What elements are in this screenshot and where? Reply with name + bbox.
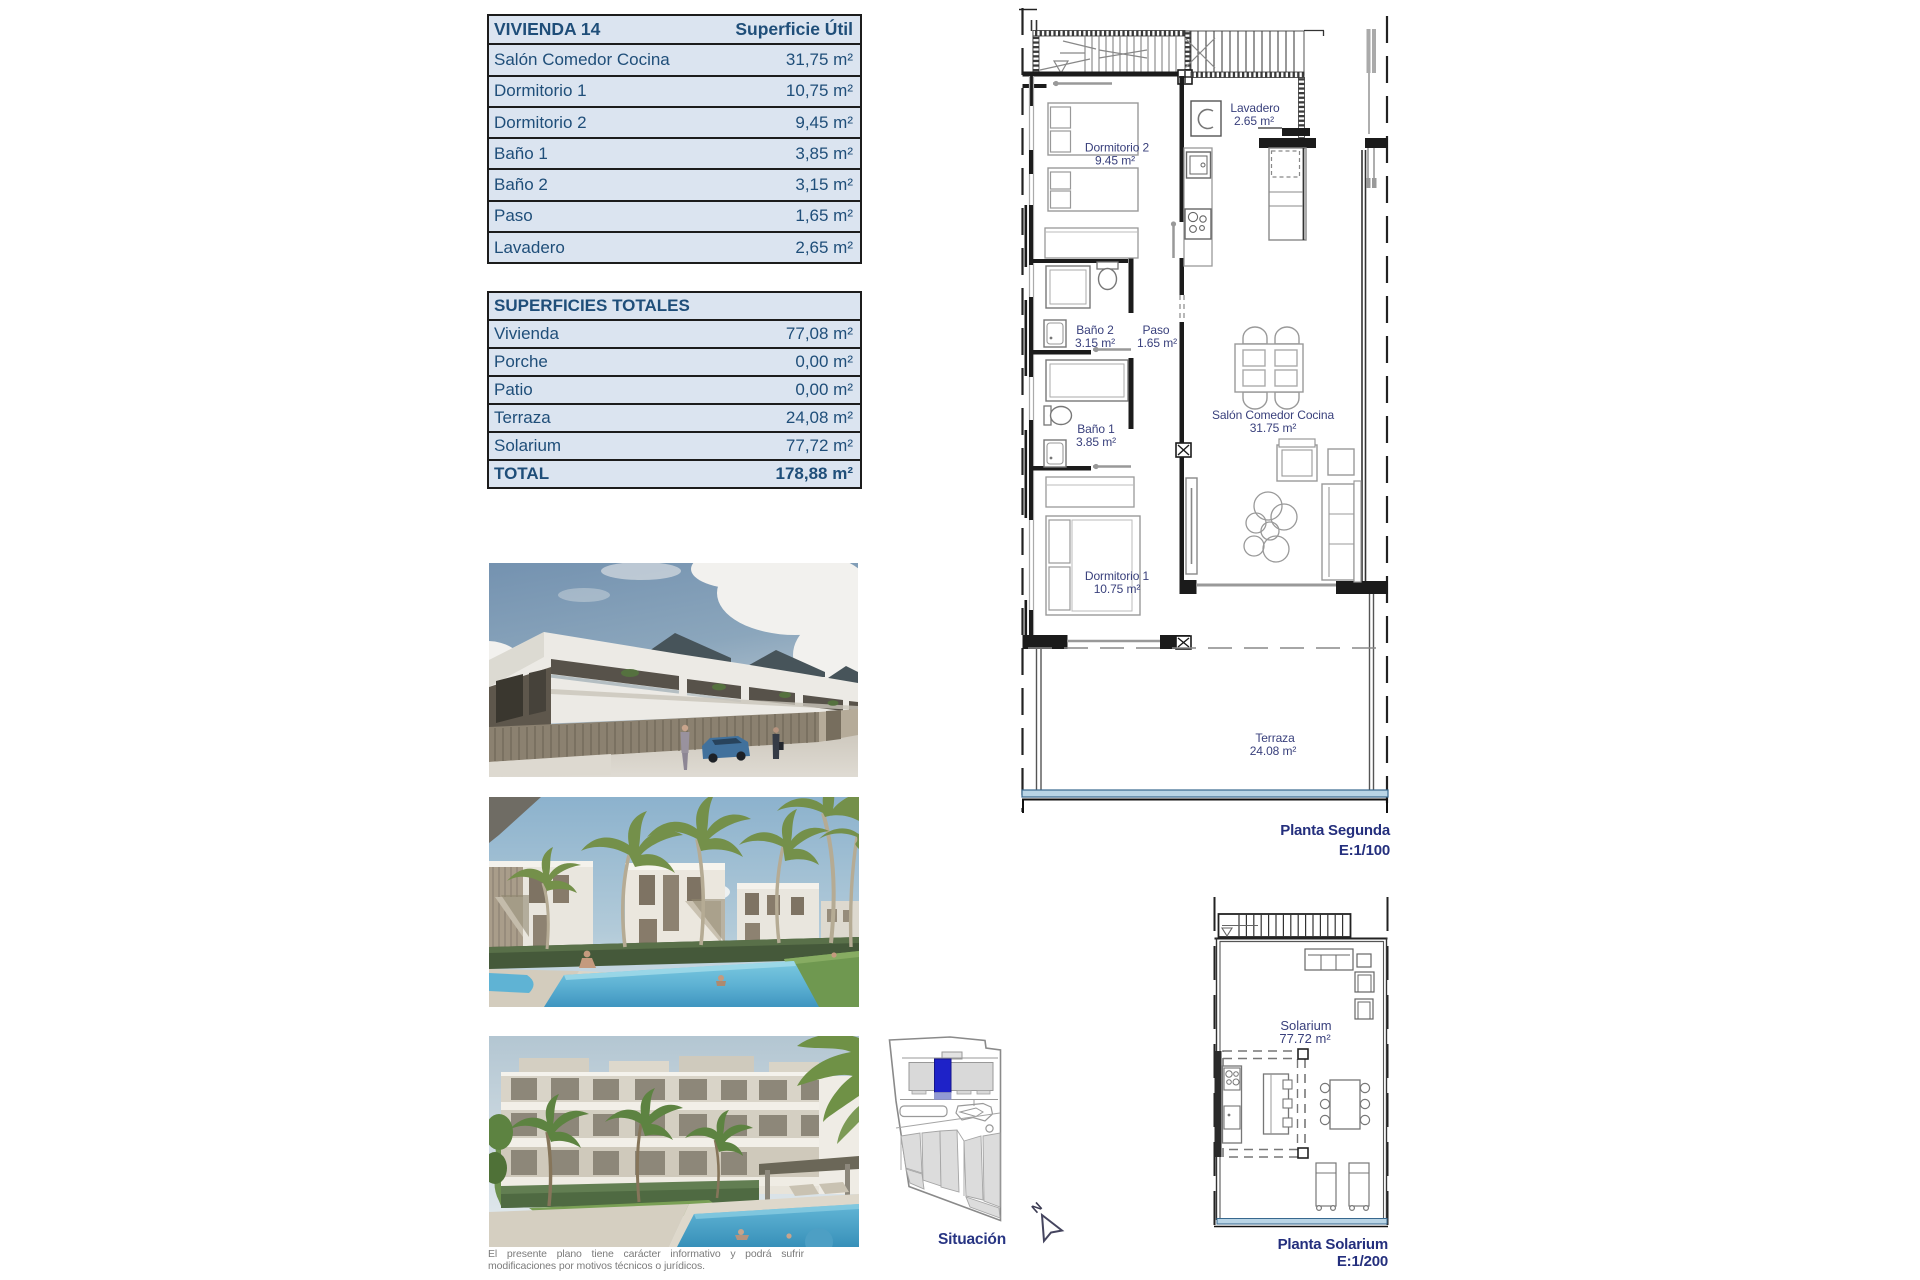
svg-text:Baño 2: Baño 2 bbox=[1076, 323, 1114, 337]
svg-text:Planta Segunda: Planta Segunda bbox=[1280, 822, 1391, 839]
svg-text:24.08 m²: 24.08 m² bbox=[1250, 744, 1297, 758]
svg-text:10.75 m²: 10.75 m² bbox=[1094, 582, 1141, 596]
svg-text:3.85 m²: 3.85 m² bbox=[1076, 435, 1116, 449]
svg-text:2.65 m²: 2.65 m² bbox=[1234, 114, 1274, 128]
svg-text:3.15 m²: 3.15 m² bbox=[1075, 336, 1115, 350]
svg-text:Salón Comedor Cocina: Salón Comedor Cocina bbox=[1212, 408, 1334, 422]
svg-text:Terraza: Terraza bbox=[1255, 731, 1295, 745]
svg-text:9.45 m²: 9.45 m² bbox=[1095, 154, 1135, 168]
svg-text:Dormitorio 1: Dormitorio 1 bbox=[1085, 569, 1150, 583]
svg-text:Paso: Paso bbox=[1143, 323, 1170, 337]
svg-text:Dormitorio 2: Dormitorio 2 bbox=[1085, 141, 1150, 155]
svg-text:N: N bbox=[1029, 1200, 1045, 1216]
svg-text:E:1/100: E:1/100 bbox=[1339, 842, 1390, 859]
svg-text:31.75 m²: 31.75 m² bbox=[1250, 421, 1297, 435]
svg-text:Situación: Situación bbox=[938, 1231, 1006, 1248]
svg-text:77.72 m²: 77.72 m² bbox=[1279, 1031, 1331, 1046]
svg-text:Lavadero: Lavadero bbox=[1230, 101, 1280, 115]
svg-text:Planta Solarium: Planta Solarium bbox=[1278, 1236, 1388, 1253]
svg-text:1.65 m²: 1.65 m² bbox=[1137, 336, 1177, 350]
svg-text:Baño 1: Baño 1 bbox=[1077, 422, 1115, 436]
svg-text:E:1/200: E:1/200 bbox=[1337, 1253, 1388, 1270]
